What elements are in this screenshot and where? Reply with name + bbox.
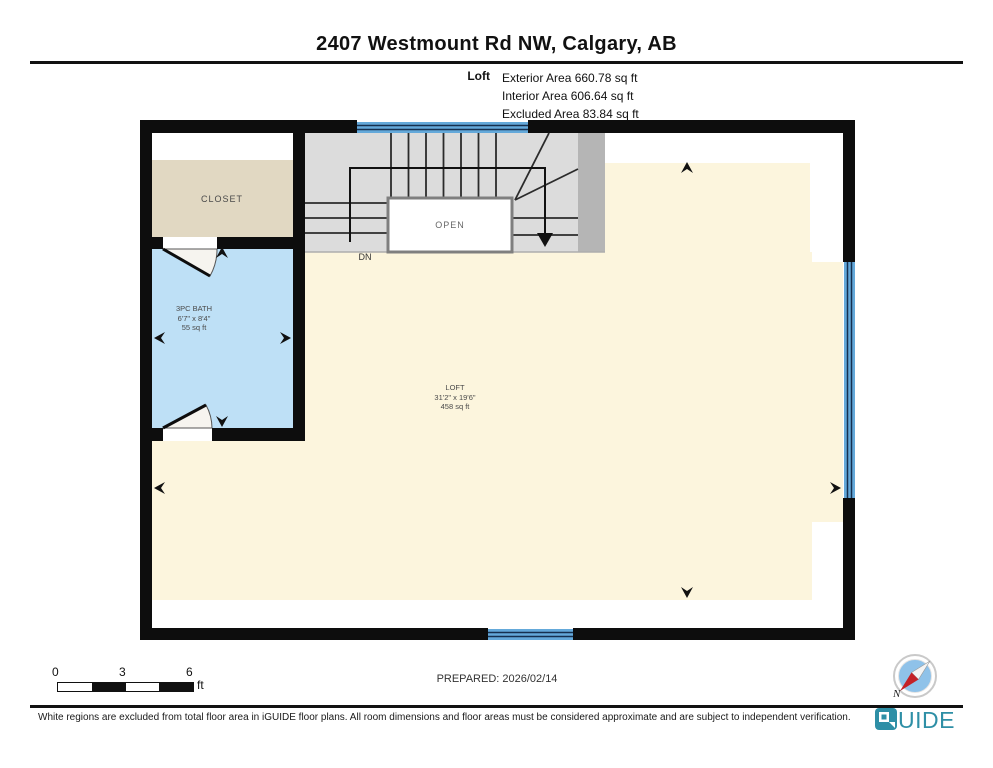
scale-seg-2 xyxy=(92,683,126,691)
bath-dimensions: 6'7" x 8'4" xyxy=(134,314,254,324)
window-right xyxy=(844,262,855,498)
loft-name: LOFT xyxy=(395,383,515,393)
scale-seg-3 xyxy=(126,683,160,691)
floorplan-page: 2407 Westmount Rd NW, Calgary, AB Loft E… xyxy=(0,0,993,768)
window-top xyxy=(357,122,528,133)
scale-seg-4 xyxy=(159,683,193,691)
footer-disclaimer: White regions are excluded from total fl… xyxy=(38,712,858,723)
loft-dimensions: 31'2" x 19'6" xyxy=(395,393,515,403)
footer-divider xyxy=(30,705,963,708)
loft-label: LOFT 31'2" x 19'6" 458 sq ft xyxy=(395,383,515,412)
scale-unit: ft xyxy=(197,678,204,692)
brand-logo: iGUIDE xyxy=(874,707,955,734)
bath-area-value: 55 sq ft xyxy=(134,323,254,333)
scale-tick-3: 3 xyxy=(119,665,126,679)
iguide-logo-icon xyxy=(874,707,898,731)
bath-label: 3PC BATH 6'7" x 8'4" 55 sq ft xyxy=(134,304,254,333)
open-label: OPEN xyxy=(388,220,512,230)
compass-north-label: N xyxy=(893,688,900,700)
scale-bar xyxy=(57,682,194,692)
prepared-date: PREPARED: 2026/02/14 xyxy=(427,673,567,685)
scale-tick-6: 6 xyxy=(186,665,193,679)
stair-edge-strip xyxy=(578,133,605,252)
bath-area xyxy=(152,249,293,428)
scale-seg-1 xyxy=(58,683,92,691)
scale-tick-0: 0 xyxy=(52,665,59,679)
bath-name: 3PC BATH xyxy=(134,304,254,314)
loft-area-value: 458 sq ft xyxy=(395,402,515,412)
closet-label: CLOSET xyxy=(162,194,282,204)
stairs-down-label: DN xyxy=(350,252,380,262)
window-bottom xyxy=(488,629,573,640)
